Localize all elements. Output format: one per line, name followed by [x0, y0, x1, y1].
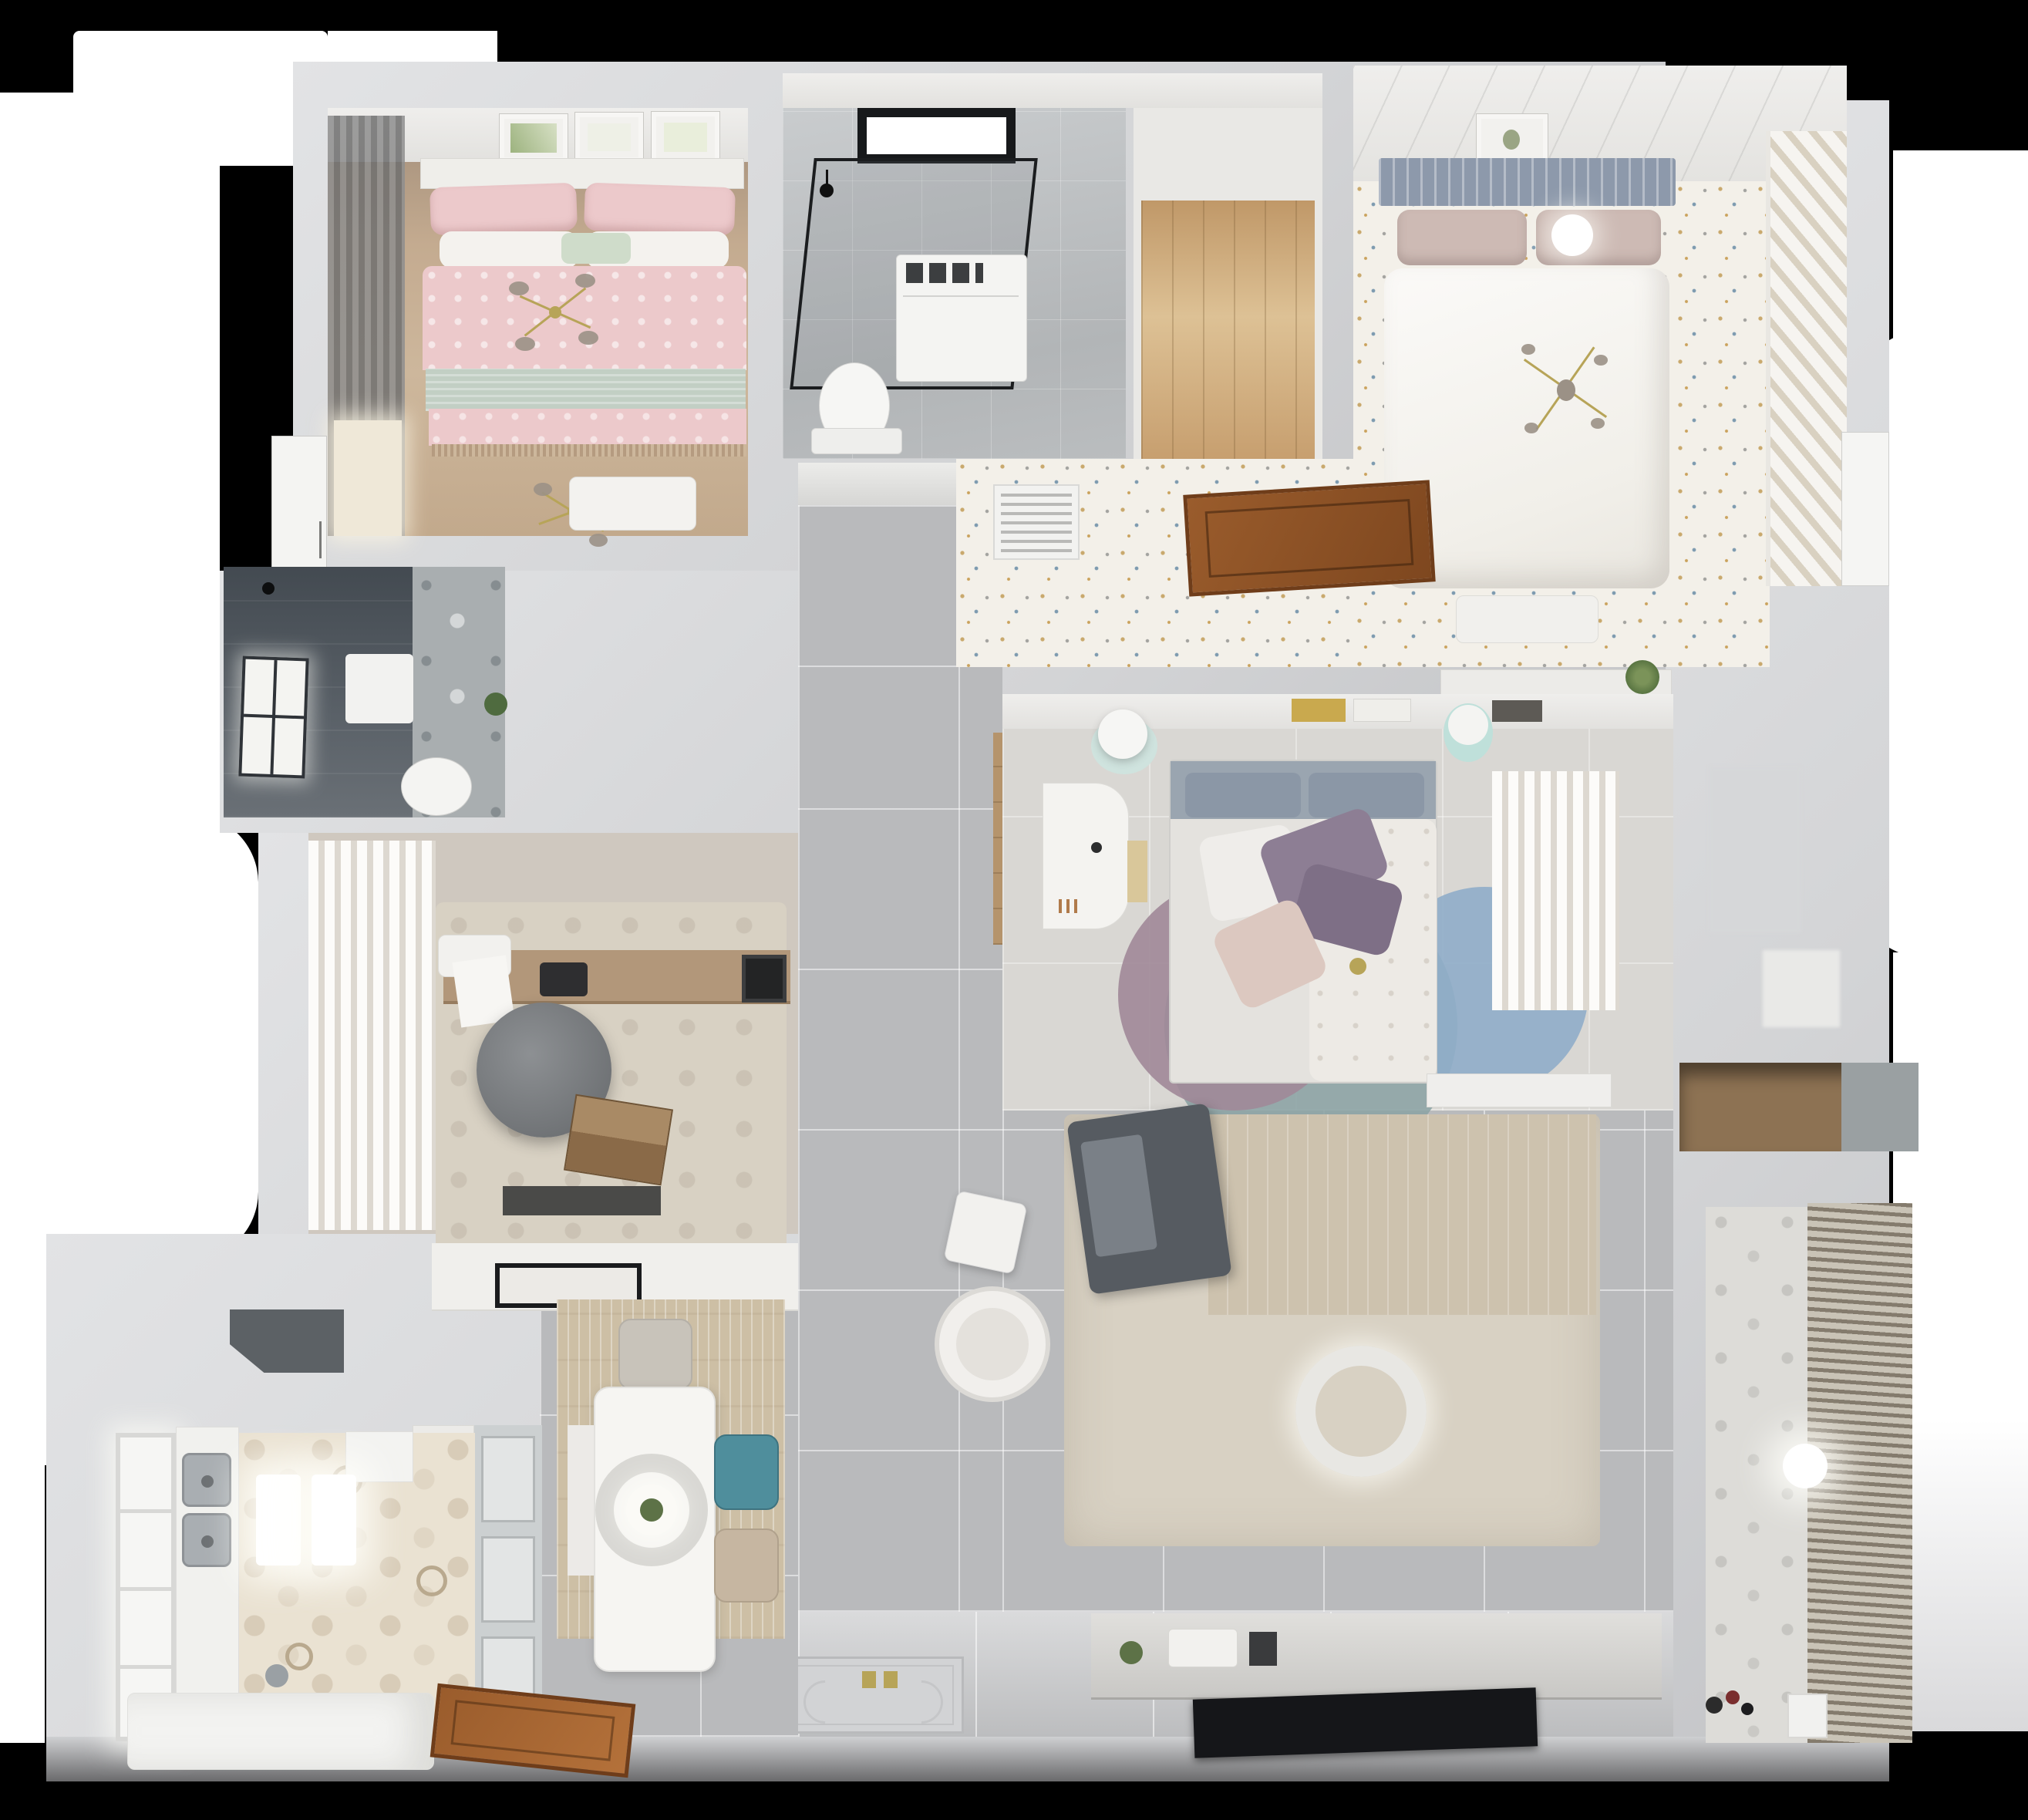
- sofa-throw: [1080, 1134, 1157, 1258]
- bedroom1-pillow-pink-left: [430, 183, 578, 236]
- living-cube-stool: [943, 1190, 1027, 1274]
- entry-doormat: [783, 1657, 964, 1734]
- art-sprig: [664, 123, 707, 152]
- room-bathroom-2: [224, 567, 505, 817]
- bedroom1-duvet-pink-lower: [429, 409, 746, 446]
- chandelier-bead: [515, 337, 535, 351]
- armchair-seat: [956, 1308, 1029, 1380]
- wardrobe-wood-floor: [1141, 201, 1315, 459]
- room-wardrobe-hall: [1134, 108, 1322, 459]
- bedroom2-closet: [1766, 131, 1847, 586]
- chandelier-bead: [534, 483, 552, 496]
- background-left-mid: [0, 814, 258, 1261]
- corridor-wood-hatch-door: [1183, 480, 1435, 596]
- sputnik-bead: [1591, 418, 1605, 429]
- room-hallway-upper: [798, 505, 956, 667]
- skylight-glass: [867, 117, 1006, 154]
- living-rug-tan-section: [1207, 1114, 1596, 1315]
- bathroom2-toilet: [401, 757, 472, 816]
- frame-plant-sketch: [1503, 130, 1520, 150]
- chandelier-bead: [575, 274, 595, 288]
- art-script: [588, 123, 631, 151]
- window-mullion: [120, 1587, 171, 1591]
- wall-niche: [1679, 1063, 1919, 1151]
- doormat-gold-motif: [862, 1671, 898, 1688]
- chandelier-bead: [578, 331, 598, 345]
- kitchen-pendant-2: [312, 1475, 356, 1566]
- bathroom2-plant: [484, 693, 507, 716]
- chandelier-bead: [589, 534, 608, 547]
- kitchen-sink-2: [182, 1513, 231, 1567]
- console-frame: [1249, 1632, 1277, 1666]
- sputnik-bead: [1594, 355, 1608, 366]
- living-media-console: [1091, 1613, 1662, 1700]
- bedroom1-headboard: [420, 158, 744, 189]
- sputnik-bead: [1521, 344, 1535, 355]
- bedroom2-sputnik-chandelier: [1508, 332, 1623, 447]
- balcony-toy-2: [1726, 1690, 1740, 1704]
- bedroom1-pillow-white-left: [440, 231, 578, 268]
- room-bathroom-1: [783, 108, 1126, 459]
- bedroom3-bed: [1169, 760, 1437, 1084]
- stool2-top: [1448, 705, 1488, 745]
- living-tv: [1193, 1687, 1538, 1758]
- bedroom2-headboard: [1379, 158, 1676, 206]
- kitchen-white-box: [345, 1431, 413, 1482]
- background-right-top: [1893, 150, 2028, 339]
- living-armchair: [935, 1286, 1050, 1402]
- living-donut-pendant: [1295, 1346, 1427, 1477]
- sputnik-hub: [1557, 379, 1575, 401]
- bath-closet-ceiling-strip: [783, 73, 1322, 108]
- window-mullion: [120, 1509, 171, 1513]
- bedroom2-pillow-left: [1397, 210, 1527, 265]
- bathroom1-skylight: [857, 108, 1016, 163]
- hex-motif-2: [416, 1566, 447, 1596]
- bedroom3-gray-pillow-right: [1309, 773, 1424, 817]
- dining-table-plant: [640, 1498, 663, 1522]
- window-mullion: [120, 1665, 171, 1669]
- hall-threshold-light: [798, 463, 956, 505]
- living-sofa: [1066, 1103, 1232, 1295]
- hatch-panel: [1205, 499, 1414, 578]
- bathroom2-towel: [345, 654, 413, 723]
- sink-drain: [201, 1535, 214, 1548]
- niche-gray-section: [1841, 1063, 1919, 1151]
- desk-pulls: [1059, 899, 1082, 913]
- chandelier-arm: [524, 288, 587, 337]
- chandelier-bead: [509, 281, 529, 295]
- dining-chair-beige: [714, 1528, 779, 1603]
- room-bedroom-1: [328, 108, 748, 536]
- right-corridor-light-2: [1763, 950, 1840, 1027]
- room-hallway-main: [798, 667, 1002, 1612]
- bathroom1-toilet-tank: [811, 428, 902, 454]
- kitchen-island: [127, 1693, 434, 1770]
- bedroom3-desk: [1043, 783, 1129, 929]
- bedroom2-ceiling-light: [1551, 214, 1593, 256]
- dining-chair-teal: [714, 1434, 779, 1510]
- bedroom1-sage-blanket: [426, 369, 746, 411]
- shower-arm: [826, 170, 828, 190]
- door-handle: [319, 521, 322, 558]
- washer-controls: [906, 263, 983, 283]
- sputnik-bead: [1524, 423, 1538, 433]
- bedroom3-gray-pillow-left: [1185, 773, 1301, 817]
- background-left-bottom: [0, 1249, 45, 1743]
- bedroom1-pillow-pink-right: [584, 183, 736, 236]
- bedroom1-pillow-sage: [561, 233, 631, 264]
- shower-head-icon: [262, 582, 275, 595]
- bedroom1-wall-art-1: [500, 114, 568, 162]
- dining-chair-top: [618, 1319, 692, 1390]
- study-dark-frame: [742, 955, 787, 1003]
- kitchen-sink-1: [182, 1453, 231, 1507]
- partition-pane: [481, 1536, 535, 1623]
- bedroom3-books-white: [1353, 699, 1411, 722]
- dining-bench: [568, 1425, 594, 1576]
- bathroom1-washer-cabinet: [896, 254, 1027, 382]
- bedroom3-books-gold: [1292, 699, 1346, 722]
- sink-drain: [201, 1475, 214, 1488]
- partition-pane: [481, 1436, 535, 1522]
- console-boxes: [1168, 1629, 1238, 1667]
- bathroom2-window: [238, 656, 308, 779]
- bedroom3-stool2: [1444, 703, 1493, 762]
- console-plant: [1120, 1641, 1143, 1664]
- bedroom1-foot-bench: [569, 477, 696, 531]
- desk-knob: [1091, 842, 1102, 853]
- corridor-vent-grille: [993, 484, 1080, 560]
- room-study: [308, 833, 798, 1234]
- bedroom3-gold-flower: [1349, 958, 1366, 975]
- bedroom1-bed-fringe: [432, 444, 746, 457]
- bedroom1-window-glow: [334, 420, 402, 536]
- bedroom1-wall-art-3: [652, 112, 719, 163]
- bedroom3-curtains: [1492, 771, 1619, 1010]
- bedroom3-stool-top: [1098, 709, 1147, 759]
- balcony-mini-chair: [1787, 1694, 1828, 1738]
- study-floor-mat: [503, 1186, 661, 1215]
- bedroom1-chandelier-a: [509, 266, 601, 359]
- door-panel-line: [451, 1700, 615, 1761]
- art-leaves: [510, 123, 557, 153]
- washer-seam: [903, 295, 1019, 297]
- bedroom3-books-dark: [1492, 700, 1542, 722]
- balcony-ball-lamp: [1783, 1444, 1828, 1488]
- room-bedroom-3: [1002, 694, 1673, 1111]
- shelf-plant: [1625, 660, 1659, 694]
- study-curtains: [308, 841, 436, 1230]
- study-laptop: [564, 1094, 673, 1186]
- right-corridor-light-1: [1709, 767, 1801, 933]
- kitchen-faucet: [265, 1664, 288, 1687]
- bedroom3-paper-tray: [1127, 841, 1147, 902]
- balcony-toy-3: [1741, 1703, 1753, 1715]
- bedroom1-wall-art-2: [575, 113, 643, 162]
- kitchen-pendant-1: [256, 1475, 301, 1566]
- bedroom2-nightstand: [1456, 595, 1598, 643]
- bedroom3-bench: [1427, 1073, 1612, 1107]
- bedroom2-door-leaf: [1841, 432, 1889, 586]
- hex-motif-3: [285, 1643, 313, 1670]
- balcony-toy-1: [1706, 1697, 1723, 1714]
- vent-slats: [1001, 492, 1072, 552]
- study-tablet: [540, 962, 588, 996]
